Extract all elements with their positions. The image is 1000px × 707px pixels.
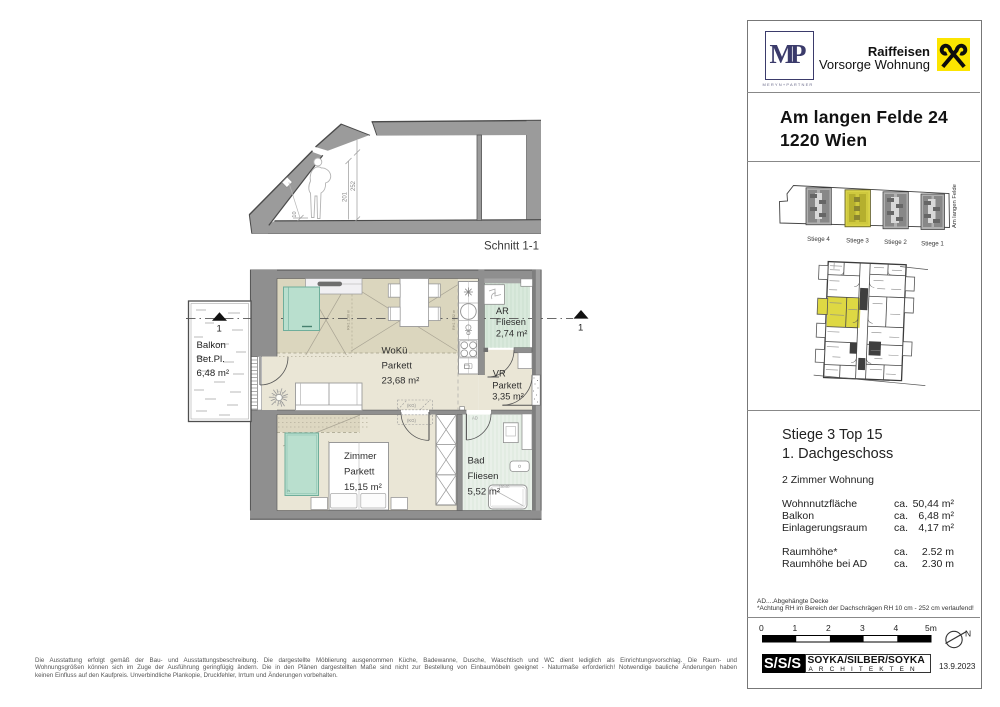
- svg-text:Stiege 1: Stiege 1: [921, 241, 944, 248]
- svg-text:Am langen Felde: Am langen Felde: [952, 184, 958, 228]
- svg-text:AR: AR: [496, 306, 509, 316]
- svg-text:3,35 m²: 3,35 m²: [492, 392, 524, 402]
- svg-text:10: 10: [292, 211, 298, 217]
- svg-text:201: 201: [343, 191, 349, 202]
- svg-text:(KG): (KG): [407, 418, 416, 423]
- svg-text:15,15 m²: 15,15 m²: [344, 482, 383, 493]
- svg-text:252: 252: [351, 180, 357, 191]
- svg-text:VR: VR: [493, 369, 506, 379]
- svg-text:AD: AD: [472, 416, 478, 421]
- svg-text:(KG): (KG): [407, 403, 416, 408]
- svg-text:Zimmer: Zimmer: [344, 451, 377, 462]
- svg-text:WoKü: WoKü: [382, 346, 408, 357]
- svg-text:Parkett: Parkett: [492, 380, 522, 390]
- svg-text:RH1 2,00 m: RH1 2,00 m: [347, 310, 351, 330]
- svg-text:1: 1: [217, 324, 222, 335]
- svg-text:1: 1: [578, 323, 583, 334]
- svg-text:Stiege 4: Stiege 4: [807, 236, 830, 243]
- svg-text:5,52 m²: 5,52 m²: [468, 487, 501, 498]
- svg-text:Stiege 3: Stiege 3: [846, 238, 869, 245]
- svg-text:2,74 m²: 2,74 m²: [496, 329, 528, 339]
- svg-text:h: h: [288, 488, 290, 493]
- svg-text:Schnitt 1-1: Schnitt 1-1: [484, 241, 539, 253]
- svg-text:Bet.Pl.: Bet.Pl.: [197, 354, 225, 365]
- svg-text:Bad: Bad: [468, 456, 485, 467]
- svg-text:Stiege 2: Stiege 2: [884, 239, 907, 246]
- svg-text:23,68 m²: 23,68 m²: [382, 376, 421, 387]
- svg-text:6,48 m²: 6,48 m²: [197, 368, 230, 379]
- svg-text:Parkett: Parkett: [382, 361, 413, 372]
- svg-text:180x80: 180x80: [499, 485, 510, 489]
- svg-text:RH1 3,02 m: RH1 3,02 m: [452, 310, 456, 330]
- svg-text:Balkon: Balkon: [197, 340, 226, 351]
- svg-text:Fliesen: Fliesen: [468, 471, 499, 482]
- svg-text:N: N: [965, 629, 971, 639]
- svg-text:Parkett: Parkett: [344, 467, 375, 478]
- svg-text:Fliesen: Fliesen: [496, 317, 526, 327]
